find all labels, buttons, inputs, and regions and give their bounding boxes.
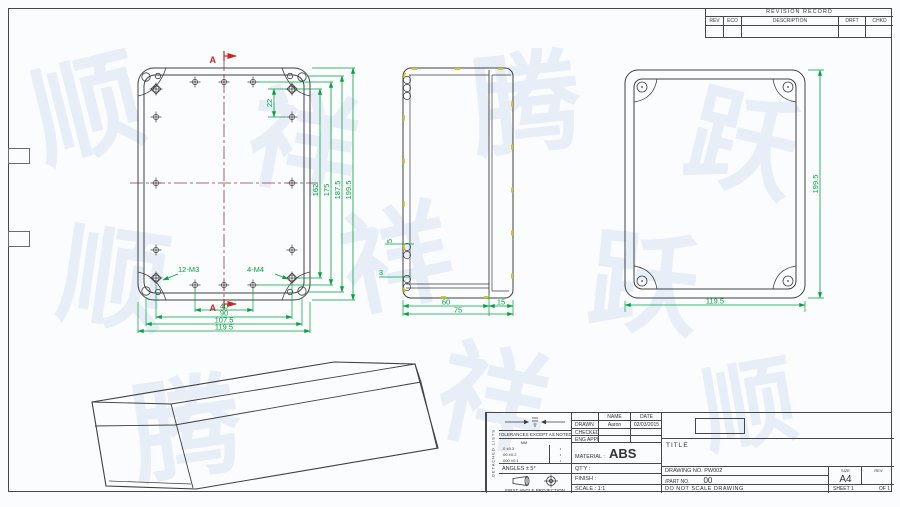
dim-5: 5 [385,239,394,243]
label-4-m4: 4-M4 [247,265,264,274]
qty-row: QT'Y : [572,463,662,473]
back-dimension-texts: 199.5 119.5 [706,175,820,306]
front-view: A A [130,51,355,333]
revision-table: REVISION RECORD REV ECO DESCRIPTION DRFT… [705,8,892,38]
dim-199-5: 199.5 [344,181,353,200]
number-row: DRAWING NO. PW002 /PART NO. 00 SIZE A4 R… [662,467,894,485]
checked-row: CHECKED [572,429,662,436]
sheet-cell: SHEET 1 OF 1 [828,485,894,493]
dimension-texts: 162 175 187.5 199.5 22 40 90 107.5 119.5… [178,99,353,332]
dim-119-5: 119.5 [215,323,233,332]
finish-symbol-row [499,413,571,431]
rev-label: REV [862,467,895,473]
drawn-date: 02/03/2015 [630,421,662,429]
scale-row: SCALE : 1:1 [572,484,662,493]
dim-162: 162 [311,184,320,197]
drawn-row: DRAWN Aaron 02/03/2015 [572,421,662,429]
eng-appr-label: ENG APPR [572,436,598,443]
col-drft: DRFT [839,16,866,25]
section-label-a-bottom: A [210,303,217,313]
dim-22: 22 [265,99,274,107]
dimension-lines [138,68,353,331]
dim-back-119-5: 119.5 [706,297,724,306]
title-cell: TITLE [662,439,894,467]
drawn-name: Aaron [598,421,630,429]
eng-appr-row: ENG APPR [572,436,662,443]
dim-75: 75 [454,306,462,315]
col-chkd: CHKD [866,16,893,25]
title-number-column: TITLE DRAWING NO. PW002 /PART NO. 00 SIZ… [661,413,893,493]
part-no-row: /PART NO. 00 [662,476,828,485]
back-extension-lines [625,70,824,312]
dim-15: 15 [497,298,505,307]
material-row: MATERIAL : ABS [572,443,662,463]
dim-back-199-5: 199.5 [811,175,820,194]
sheet-label: SHEET 1 [833,486,854,492]
bottom-row: DO NOT SCALE DRAWING SHEET 1 OF 1 [662,485,894,493]
title-block: DETACHED LISTS TOLERANCES EXCEPT AS NOTE… [485,412,892,492]
logo-area [662,413,894,439]
dim-187-5: 187.5 [333,181,342,200]
boss-center-dots [641,86,789,282]
approval-material-column: NAME DATE DRAWN Aaron 02/03/2015 CHECKED… [571,413,661,493]
engineering-drawing-sheet: { "watermark": { "glyphs": ["顺","祥","腾",… [0,0,900,500]
col-rev: REV [706,16,724,25]
back-dimension-lines [625,70,820,305]
projection-symbols [499,473,571,487]
finish-row: FINISH : [572,473,662,484]
projection-label: FIRST ANGLE PROJECTION [499,487,571,493]
isometric-view [92,362,438,489]
approval-header-row: NAME DATE [572,413,662,421]
title-block-side-label: DETACHED LISTS [486,413,499,493]
dim-175: 175 [322,184,331,197]
yellow-edge-ticks [404,69,512,297]
cone-icon [511,475,535,487]
rev-cell: REV [861,467,894,485]
drawn-label: DRAWN [572,421,598,429]
size-cell: SIZE A4 [828,467,861,485]
tolerance-table: MM .0 ±0.3 .00 ±0.2 .000 ±0.1 • • • [499,439,571,463]
finish-symbol-icon [503,415,567,429]
dim-3: 3 [379,268,383,277]
logo-box [695,418,745,434]
date-header: DATE [630,413,662,421]
do-not-scale: DO NOT SCALE DRAWING [662,485,828,493]
col-eco: ECO [724,16,742,25]
section-label-a-top: A [210,55,217,65]
checked-label: CHECKED [572,429,598,436]
target-icon [543,474,559,488]
material-value: ABS [609,446,636,461]
of-label: OF 1 [879,486,890,492]
dim-60: 60 [442,298,450,307]
back-view: 199.5 119.5 [625,70,824,312]
material-label: MATERIAL : [575,454,605,460]
size-value: A4 [829,473,862,485]
col-description: DESCRIPTION [742,16,839,25]
revision-table-empty-row [706,25,893,38]
side-view: 60 15 75 5 3 [379,68,513,316]
part-no-value: 00 [703,476,712,485]
drawing-no: DRAWING NO. PW002 [662,467,828,476]
label-12-m3: 12-M3 [178,265,199,274]
tolerance-note: TOLERANCES EXCEPT AS NOTED [499,431,571,439]
name-header: NAME [598,413,630,421]
section-marker-top: A [210,51,237,65]
angles-tolerance: ANGLES ± 5° [499,463,571,473]
